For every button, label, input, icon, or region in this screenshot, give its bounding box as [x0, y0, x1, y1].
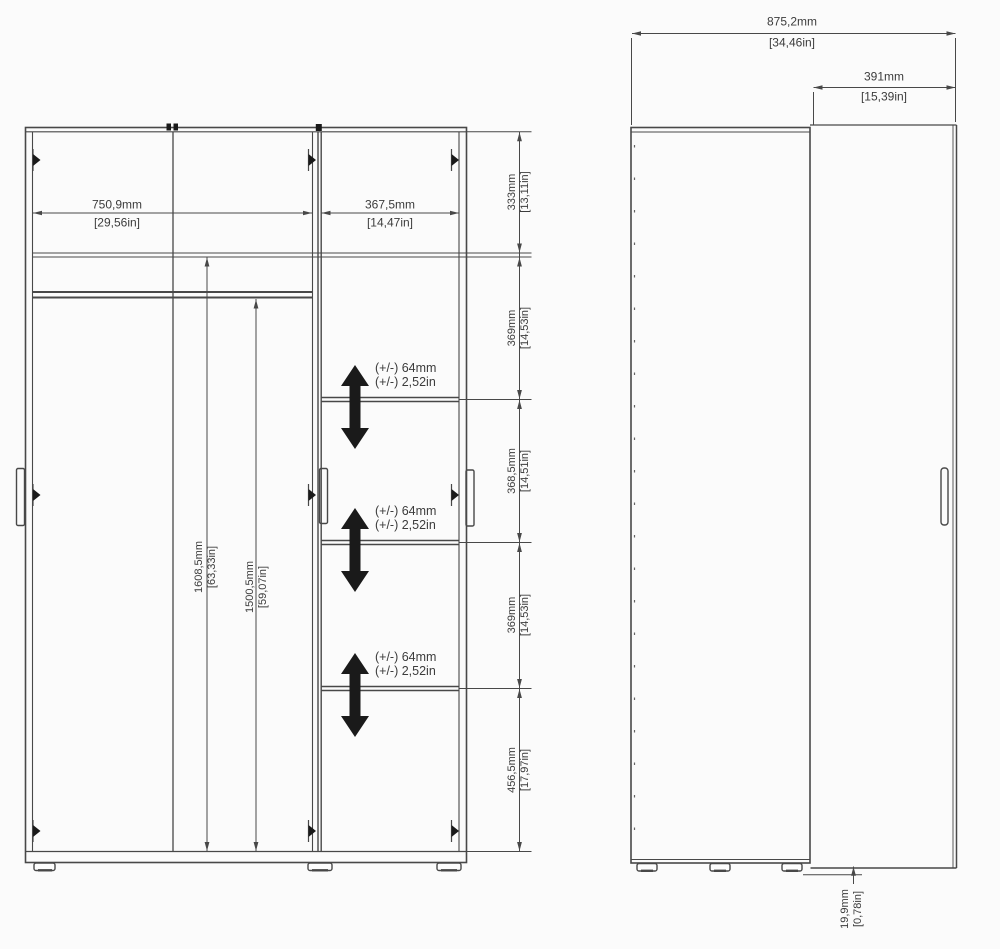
- drawing-canvas: [0, 0, 1000, 949]
- side-floor-gap-dim: 19,9mm [0,78in]: [839, 889, 865, 929]
- dim-mm-text: 1500,5mm: [244, 561, 257, 613]
- front-width-left-mm-label: 750,9mm: [92, 199, 142, 212]
- front-width-right-in-label: [14,47in]: [367, 217, 413, 230]
- interior-height-dim-1608: 1608,5mm [63,33in]: [193, 541, 219, 593]
- note-in-text: (+/-) 2,52in: [375, 664, 436, 678]
- adjustable-shelf-note-1: (+/-) 64mm (+/-) 2,52in: [375, 361, 436, 389]
- adjustable-shelf-note-3: (+/-) 64mm (+/-) 2,52in: [375, 650, 436, 678]
- wardrobe-technical-drawing: 750,9mm [29,56in] 367,5mm [14,47in] 1608…: [0, 0, 1000, 949]
- side-door-clearance-in-label: [15,39in]: [861, 91, 907, 104]
- note-in-text: (+/-) 2,52in: [375, 518, 436, 532]
- dim-mm-text: 456,5mm: [506, 747, 519, 793]
- front-view-dimensions: [33, 132, 532, 852]
- dim-in-text: [59,07in]: [257, 561, 270, 613]
- dim-mm-text: 333mm: [506, 171, 519, 212]
- dim-mm-text: 369mm: [506, 594, 519, 636]
- side-view-outline: [631, 125, 957, 868]
- side-door-clearance-mm-label: 391mm: [864, 71, 904, 84]
- dim-mm-text: 1608,5mm: [193, 541, 206, 593]
- side-view-door-handle: [941, 468, 948, 525]
- section-height-dim-2: 369mm [14,53in]: [506, 307, 532, 349]
- side-view-dimensions: [632, 31, 956, 884]
- front-view-feet: [34, 863, 461, 871]
- section-height-dim-1: 333mm [13,11in]: [506, 171, 532, 212]
- interior-height-dim-1500: 1500,5mm [59,07in]: [244, 561, 270, 613]
- front-width-right-mm-label: 367,5mm: [365, 199, 415, 212]
- dim-mm-text: 19,9mm: [839, 889, 852, 929]
- dim-in-text: [14,53in]: [519, 594, 532, 636]
- side-total-depth-mm-label: 875,2mm: [767, 16, 817, 29]
- note-mm-text: (+/-) 64mm: [375, 361, 436, 375]
- adjustable-shelf-note-2: (+/-) 64mm (+/-) 2,52in: [375, 504, 436, 532]
- dim-in-text: [17,97in]: [519, 747, 532, 793]
- front-view-outline: [26, 124, 467, 863]
- section-height-dim-3: 368,5mm [14,51in]: [506, 448, 532, 494]
- dim-mm-text: 369mm: [506, 307, 519, 349]
- side-total-depth-in-label: [34,46in]: [769, 37, 815, 50]
- side-view-feet: [637, 864, 802, 872]
- note-mm-text: (+/-) 64mm: [375, 650, 436, 664]
- dim-in-text: [14,53in]: [519, 307, 532, 349]
- section-height-dim-4: 369mm [14,53in]: [506, 594, 532, 636]
- dim-in-text: [63,33in]: [206, 541, 219, 593]
- note-in-text: (+/-) 2,52in: [375, 375, 436, 389]
- adjustable-shelf-arrows: [341, 365, 369, 737]
- dim-in-text: [0,78in]: [852, 889, 865, 929]
- dim-in-text: [13,11in]: [519, 171, 532, 212]
- dim-in-text: [14,51in]: [519, 448, 532, 494]
- note-mm-text: (+/-) 64mm: [375, 504, 436, 518]
- front-width-left-in-label: [29,56in]: [94, 217, 140, 230]
- section-height-dim-5: 456,5mm [17,97in]: [506, 747, 532, 793]
- dim-mm-text: 368,5mm: [506, 448, 519, 494]
